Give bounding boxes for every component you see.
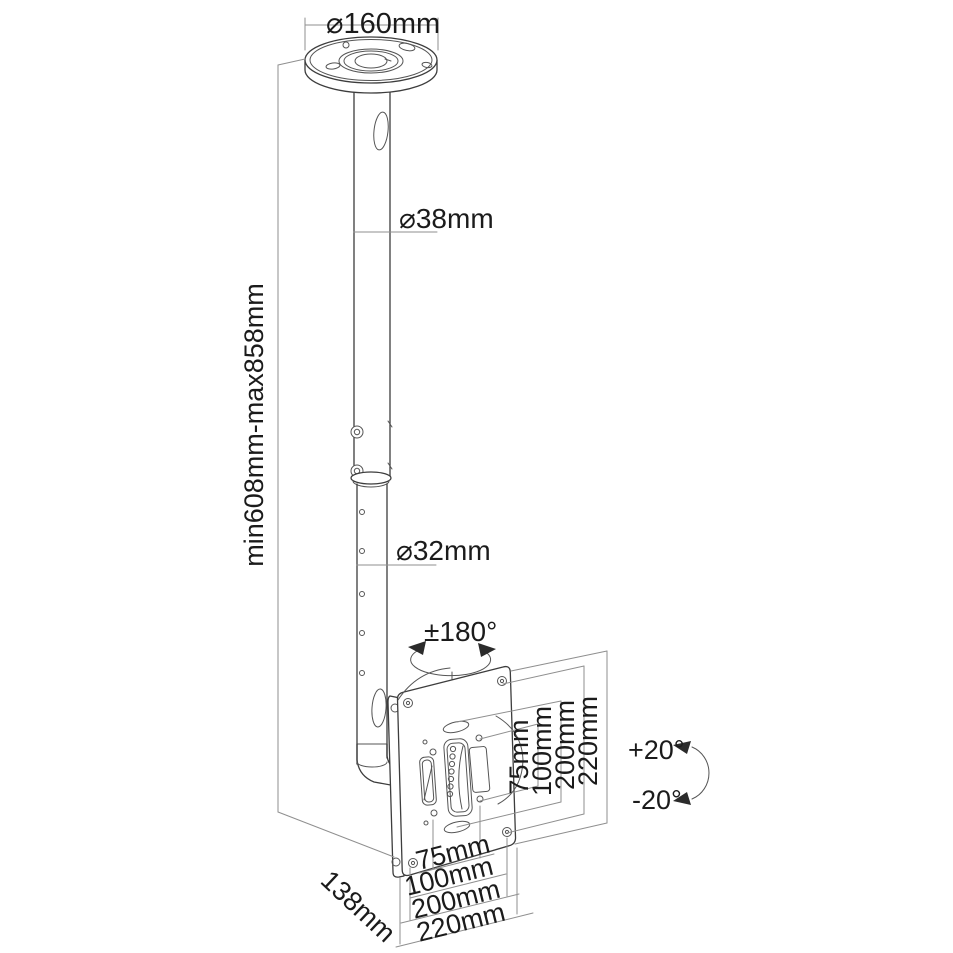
height-dim-top-connector bbox=[278, 59, 305, 65]
dimv200-top bbox=[503, 666, 584, 684]
adjustment-hole-5 bbox=[360, 671, 365, 676]
upper-pole-cable-slot bbox=[372, 111, 390, 150]
lower-pole-cable-slot bbox=[371, 689, 388, 728]
technical-drawing-canvas: ⌀160mm ⌀38mm min608mm-max858mm ⌀32mm ±18… bbox=[0, 0, 953, 953]
ceiling-mount-diagram: ⌀160mm ⌀38mm min608mm-max858mm ⌀32mm ±18… bbox=[0, 0, 953, 953]
dim-tilt-up-label: +20° bbox=[628, 735, 685, 765]
dim-tilt-down-label: -20° bbox=[632, 785, 682, 815]
dimv220-bottom bbox=[515, 823, 607, 844]
dim-mount-depth-label: 138mm bbox=[315, 865, 401, 948]
adjustment-hole-2 bbox=[360, 549, 365, 554]
adjustment-hole-3 bbox=[360, 592, 365, 597]
dimv220-top bbox=[511, 651, 607, 671]
ceiling-plate-top-face bbox=[305, 37, 437, 83]
dim-swivel-range-label: ±180° bbox=[424, 616, 497, 647]
dim-tilt-range: +20° -20° bbox=[628, 735, 709, 815]
dim-height-range-label: min608mm-max858mm bbox=[239, 283, 269, 567]
locking-knob-top bbox=[351, 426, 363, 438]
tilt-arc bbox=[692, 747, 709, 799]
dim-swivel-range: ±180° bbox=[424, 616, 497, 647]
lower-pole bbox=[357, 484, 387, 764]
adjustment-hole-4 bbox=[360, 631, 365, 636]
dim-upper-pole-diameter-label: ⌀38mm bbox=[399, 203, 494, 234]
adjustment-hole-1 bbox=[360, 510, 365, 515]
arm-clamp-ring bbox=[357, 762, 387, 767]
dim-height-range: min608mm-max858mm bbox=[239, 59, 394, 857]
dim-upper-pole-diameter: ⌀38mm bbox=[354, 203, 494, 234]
height-dim-bottom-diagonal bbox=[278, 812, 394, 857]
dim-mount-depth: 138mm bbox=[315, 865, 401, 948]
dim-ceiling-plate-diameter-label: ⌀160mm bbox=[326, 8, 440, 40]
upper-pole bbox=[351, 84, 392, 478]
dim-vesa-vertical-220-label: 220mm bbox=[573, 696, 603, 786]
collar-ring bbox=[351, 472, 391, 484]
dim-lower-pole-diameter: ⌀32mm bbox=[357, 535, 491, 566]
ceiling-plate bbox=[305, 37, 437, 93]
dimv200-bottom bbox=[507, 814, 584, 833]
dim-lower-pole-diameter-label: ⌀32mm bbox=[396, 535, 491, 566]
